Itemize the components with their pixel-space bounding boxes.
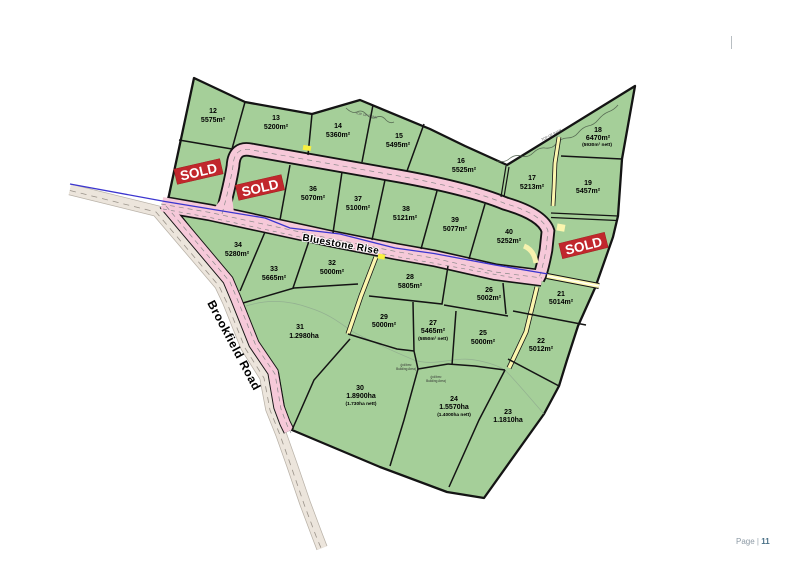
svg-text:14: 14 bbox=[334, 123, 342, 130]
svg-text:29: 29 bbox=[380, 314, 388, 321]
svg-text:25: 25 bbox=[479, 330, 487, 337]
svg-text:5360m²: 5360m² bbox=[326, 132, 351, 139]
svg-text:5805m²: 5805m² bbox=[398, 283, 423, 290]
svg-text:16: 16 bbox=[457, 158, 465, 165]
svg-text:5280m²: 5280m² bbox=[225, 251, 250, 258]
svg-text:5252m²: 5252m² bbox=[497, 238, 522, 245]
svg-text:(5850m² nett): (5850m² nett) bbox=[418, 336, 448, 342]
svg-text:(5930m² nett): (5930m² nett) bbox=[582, 142, 612, 148]
svg-text:38: 38 bbox=[402, 206, 410, 213]
svg-text:5457m²: 5457m² bbox=[576, 188, 601, 195]
svg-text:5000m²: 5000m² bbox=[320, 269, 345, 276]
svg-text:13: 13 bbox=[272, 115, 280, 122]
svg-text:19: 19 bbox=[584, 180, 592, 187]
svg-text:23: 23 bbox=[504, 409, 512, 416]
svg-text:37: 37 bbox=[354, 196, 362, 203]
svg-text:15: 15 bbox=[395, 133, 403, 140]
svg-text:1.2980ha: 1.2980ha bbox=[289, 333, 319, 340]
svg-text:6470m²: 6470m² bbox=[586, 135, 611, 142]
svg-text:5495m²: 5495m² bbox=[386, 142, 411, 149]
svg-text:1.5570ha: 1.5570ha bbox=[439, 404, 469, 411]
svg-text:24: 24 bbox=[450, 396, 458, 403]
svg-text:34: 34 bbox=[234, 242, 242, 249]
svg-text:18: 18 bbox=[594, 127, 602, 134]
svg-text:5012m²: 5012m² bbox=[529, 346, 554, 353]
svg-text:32: 32 bbox=[328, 260, 336, 267]
svg-text:5077m²: 5077m² bbox=[443, 226, 468, 233]
svg-text:Page | 11: Page | 11 bbox=[736, 537, 770, 546]
svg-text:5070m²: 5070m² bbox=[301, 195, 326, 202]
svg-text:Building Area): Building Area) bbox=[396, 367, 416, 371]
svg-text:30: 30 bbox=[356, 385, 364, 392]
svg-text:5000m²: 5000m² bbox=[471, 339, 496, 346]
svg-text:5575m²: 5575m² bbox=[201, 117, 226, 124]
svg-text:1.1810ha: 1.1810ha bbox=[493, 417, 523, 424]
svg-text:27: 27 bbox=[429, 320, 437, 327]
svg-text:33: 33 bbox=[270, 266, 278, 273]
svg-text:40: 40 bbox=[505, 229, 513, 236]
svg-text:5525m²: 5525m² bbox=[452, 167, 477, 174]
svg-text:36: 36 bbox=[309, 186, 317, 193]
svg-text:5121m²: 5121m² bbox=[393, 215, 418, 222]
svg-text:(1.730ha nett): (1.730ha nett) bbox=[346, 401, 377, 407]
svg-text:31: 31 bbox=[296, 324, 304, 331]
svg-text:5100m²: 5100m² bbox=[346, 205, 371, 212]
svg-text:5665m²: 5665m² bbox=[262, 275, 287, 282]
svg-text:Building Area): Building Area) bbox=[426, 379, 446, 383]
svg-text:5213m²: 5213m² bbox=[520, 184, 545, 191]
svg-text:5002m²: 5002m² bbox=[477, 295, 502, 302]
svg-text:12: 12 bbox=[209, 108, 217, 115]
svg-text:26: 26 bbox=[485, 287, 493, 294]
svg-text:5014m²: 5014m² bbox=[549, 299, 574, 306]
svg-text:22: 22 bbox=[537, 338, 545, 345]
svg-text:(1.4000ha nett): (1.4000ha nett) bbox=[437, 412, 471, 418]
svg-text:5465m²: 5465m² bbox=[421, 328, 446, 335]
svg-text:21: 21 bbox=[557, 291, 565, 298]
svg-text:28: 28 bbox=[406, 274, 414, 281]
svg-text:17: 17 bbox=[528, 175, 536, 182]
svg-text:1.8900ha: 1.8900ha bbox=[346, 393, 376, 400]
svg-text:5200m²: 5200m² bbox=[264, 124, 289, 131]
svg-text:5000m²: 5000m² bbox=[372, 322, 397, 329]
svg-text:39: 39 bbox=[451, 217, 459, 224]
